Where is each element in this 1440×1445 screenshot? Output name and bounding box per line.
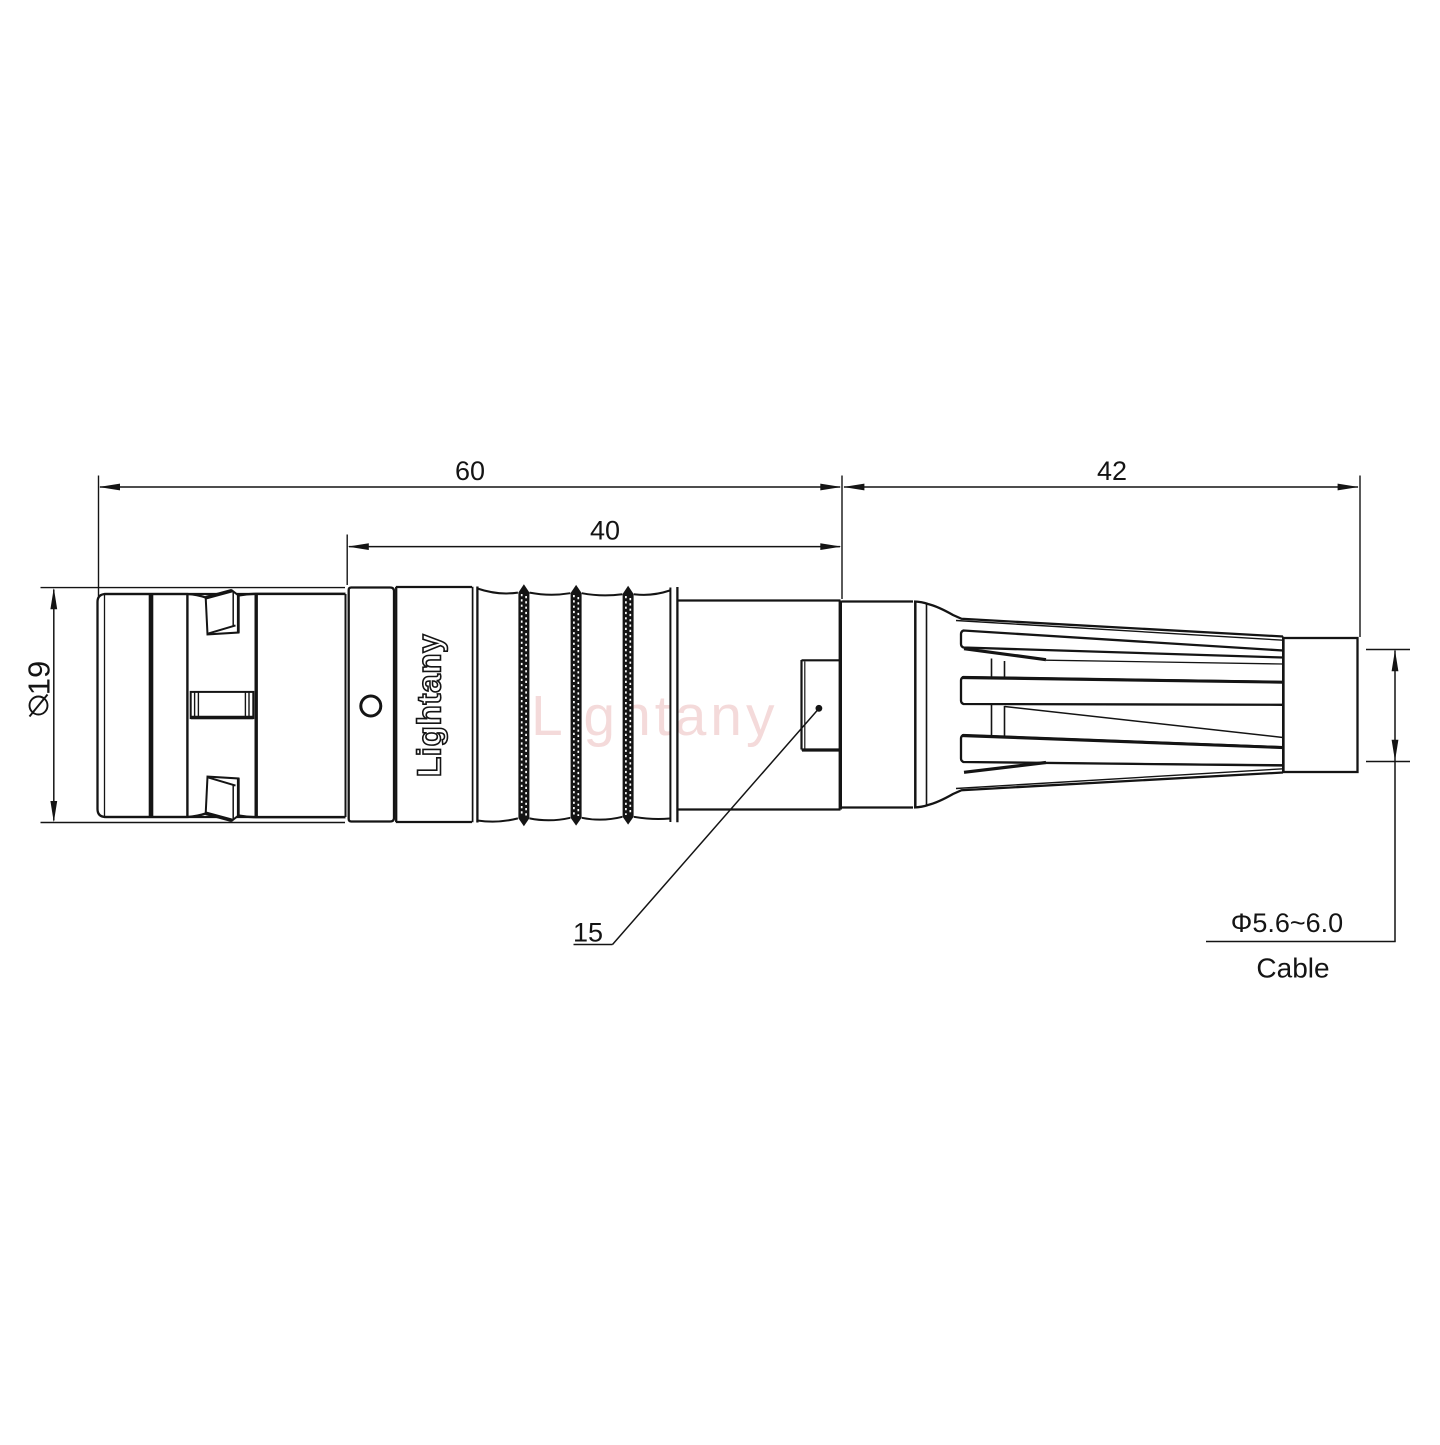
svg-text:60: 60 [455,456,485,486]
svg-text:40: 40 [590,516,620,546]
svg-text:19: 19 [22,661,57,695]
svg-text:Lightany: Lightany [531,684,779,748]
svg-text:Φ5.6~6.0: Φ5.6~6.0 [1231,908,1343,938]
svg-text:15: 15 [573,918,603,948]
svg-text:Lightany: Lightany [412,634,449,778]
svg-text:42: 42 [1097,456,1127,486]
svg-text:Cable: Cable [1256,953,1329,984]
